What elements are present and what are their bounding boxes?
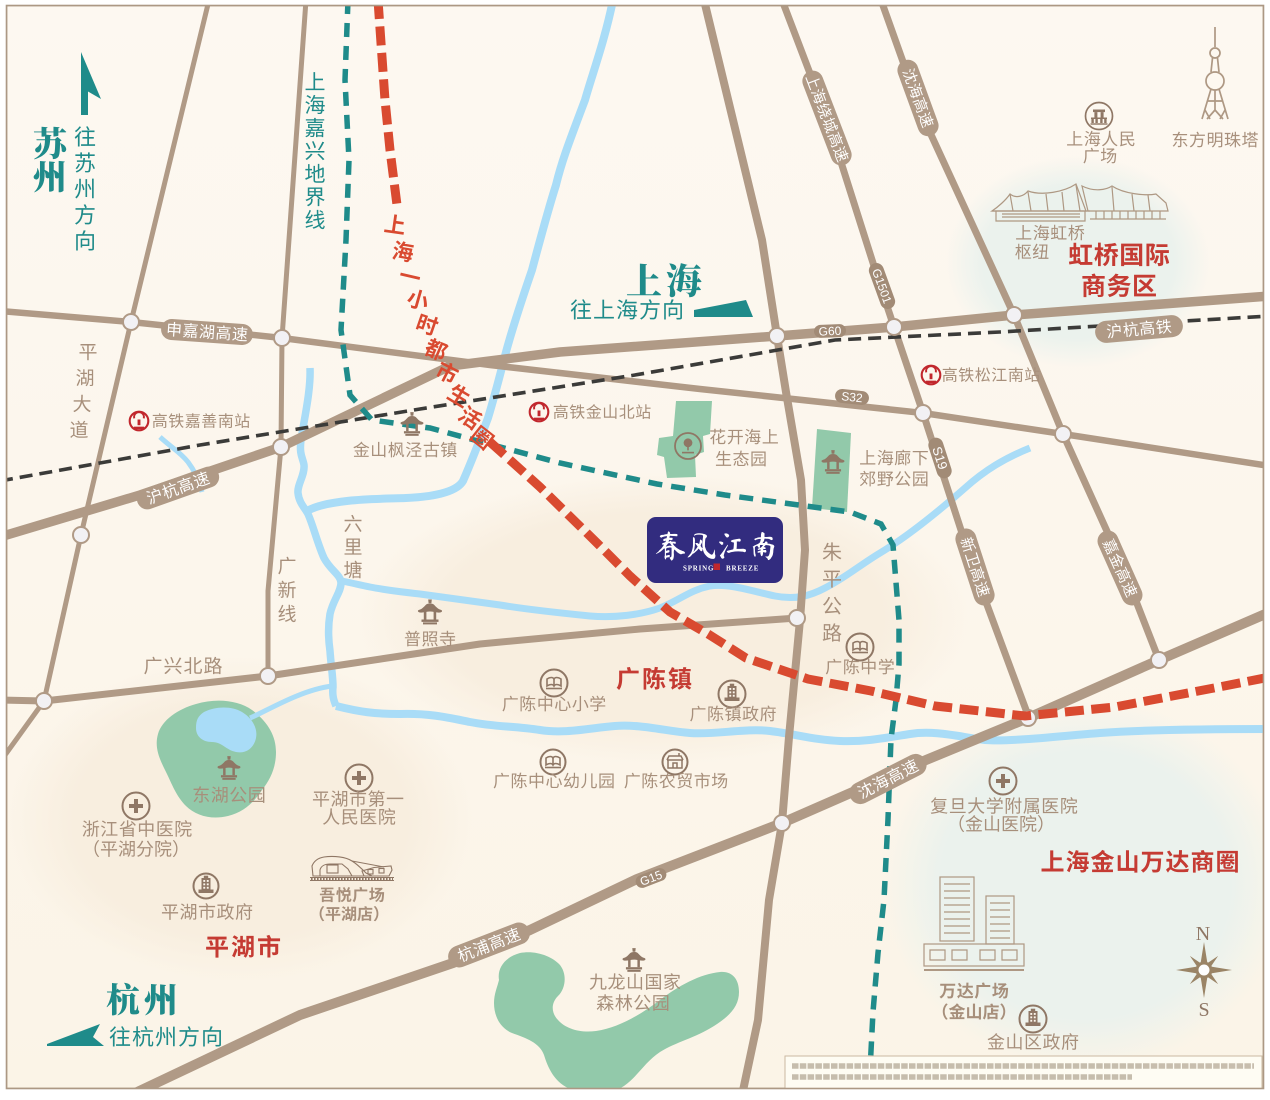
svg-text:N: N: [1196, 923, 1210, 945]
svg-text:S32: S32: [841, 389, 864, 405]
svg-text:BREEZE: BREEZE: [726, 565, 759, 573]
svg-text:G60: G60: [818, 324, 841, 339]
svg-text:S: S: [1198, 999, 1209, 1021]
svg-text:SPRING: SPRING: [683, 565, 714, 573]
